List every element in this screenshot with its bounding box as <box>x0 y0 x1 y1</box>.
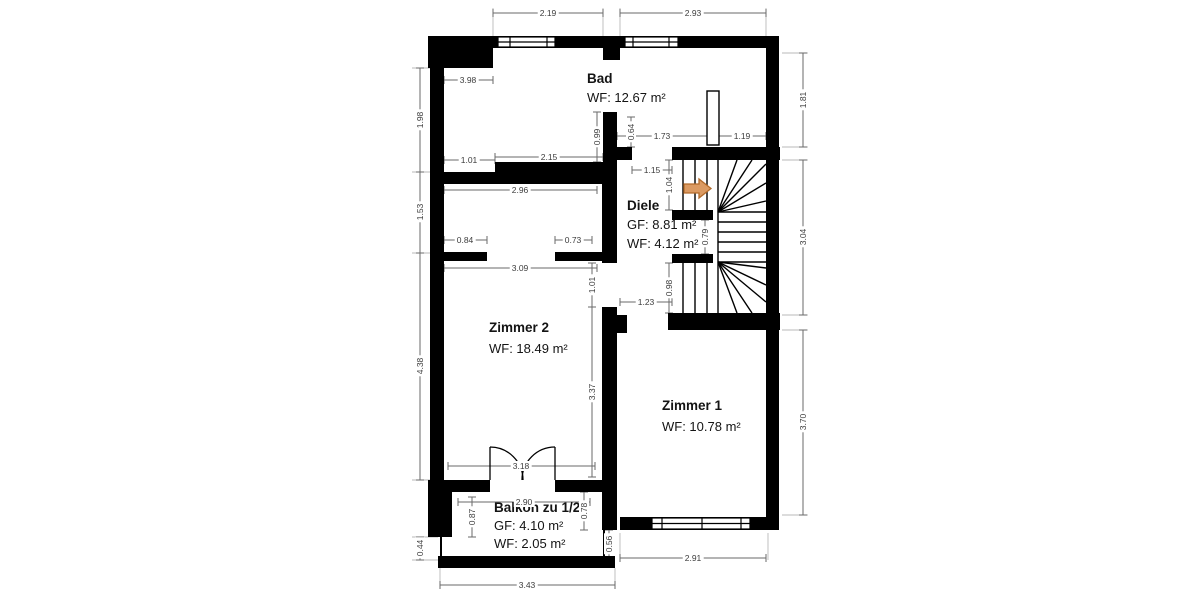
dim-label-bad-east-lower: 0.64 <box>626 122 636 143</box>
dim-label-zimmer2-east: 3.37 <box>587 382 597 403</box>
dim-label-bad-door: 1.01 <box>459 155 480 165</box>
dim-label-alcove-width: 2.96 <box>510 185 531 195</box>
window-zimmer1 <box>652 518 750 529</box>
room-label-diele: Diele <box>627 198 659 213</box>
room-area-zimmer2-wf: WF: 18.49 m² <box>489 341 568 356</box>
dim-label-top-right: 2.93 <box>683 8 704 18</box>
dim-label-bottom-zimmer1: 2.91 <box>683 553 704 563</box>
dim-label-balkon-left: 0.87 <box>467 507 477 528</box>
room-area-balkon-wf: WF: 2.05 m² <box>494 536 566 551</box>
wall-diele-stub <box>603 147 632 160</box>
dim-label-balkon-width: 2.90 <box>514 497 535 507</box>
wall-bad-threshold <box>444 172 603 184</box>
dim-label-stub-right: 0.73 <box>563 235 584 245</box>
dim-label-top-left: 2.19 <box>538 8 559 18</box>
dim-label-balkon-edge-right: 0.56 <box>604 534 614 555</box>
dim-label-right-upper: 1.81 <box>798 90 808 111</box>
dim-label-chimney-right: 1.19 <box>732 131 753 141</box>
room-label-zimmer1: Zimmer 1 <box>662 398 722 413</box>
dim-label-stair-mid: 0.79 <box>700 227 710 248</box>
dim-label-bad-width: 3.98 <box>458 75 479 85</box>
dim-label-stub-left: 0.84 <box>455 235 476 245</box>
wall-stair-top <box>672 147 780 160</box>
dim-label-stair-lower: 0.98 <box>664 278 674 299</box>
floor-plan: Bad WF: 12.67 m² Diele GF: 8.81 m² WF: 4… <box>0 0 1200 600</box>
wall-bad-south <box>495 162 603 172</box>
dim-label-zimmer2-south: 3.18 <box>511 461 532 471</box>
room-label-balkon: Balkon zu 1/2 <box>494 500 580 515</box>
dim-label-bottom-balkon: 3.43 <box>517 580 538 590</box>
wall-right <box>766 48 779 530</box>
dim-label-stair-upper: 1.04 <box>664 175 674 196</box>
dim-label-left-mid: 1.53 <box>415 202 425 223</box>
wall-alcove-stub-right <box>555 252 602 261</box>
wall-south-zimmer2-right <box>555 480 617 492</box>
wall-south-zimmer2-left <box>428 480 490 492</box>
room-label-bad: Bad <box>587 71 613 86</box>
dim-label-right-mid: 3.04 <box>798 227 808 248</box>
dim-label-diele-opening: 1.15 <box>642 165 663 175</box>
dim-label-balkon-right: 0.78 <box>579 501 589 522</box>
dim-label-left-lower: 4.38 <box>415 356 425 377</box>
dim-label-bad-east-upper: 0.99 <box>592 127 602 148</box>
wall-stair-bottom <box>668 313 780 330</box>
room-area-zimmer1-wf: WF: 10.78 m² <box>662 419 741 434</box>
wall-left <box>430 48 444 485</box>
dim-label-balkon-edge-left: 0.44 <box>415 538 425 559</box>
dim-label-left-upper: 1.98 <box>415 110 425 131</box>
dim-label-zimmer2-width: 3.09 <box>510 263 531 273</box>
room-area-bad-wf: WF: 12.67 m² <box>587 90 666 105</box>
wall-alcove-stub-left <box>430 252 487 261</box>
wall-zimmer1-west <box>602 307 617 530</box>
chimney <box>707 91 719 145</box>
dim-label-right-lower: 3.70 <box>798 412 808 433</box>
dim-label-zimmer1-door: 1.23 <box>636 297 657 307</box>
window-bad-left <box>498 37 555 47</box>
wall-balcony-parapet <box>438 556 615 568</box>
room-label-zimmer2: Zimmer 2 <box>489 320 549 335</box>
room-area-diele-wf: WF: 4.12 m² <box>627 236 699 251</box>
walls <box>428 36 780 568</box>
room-area-balkon-gf: GF: 4.10 m² <box>494 518 563 533</box>
room-area-diele-gf: GF: 8.81 m² <box>627 217 696 232</box>
dim-label-bad-chimney-left: 1.73 <box>652 131 673 141</box>
wall-zimmer1-west-chunk <box>602 315 627 333</box>
window-bad-right <box>625 37 678 47</box>
dim-label-zimmer2-door: 1.01 <box>587 275 597 296</box>
wall-pier-top <box>603 36 620 60</box>
wall-stair-stub-lower <box>672 254 713 263</box>
dim-label-bad-wall: 2.15 <box>539 152 560 162</box>
wall-alcove-east <box>602 184 617 263</box>
